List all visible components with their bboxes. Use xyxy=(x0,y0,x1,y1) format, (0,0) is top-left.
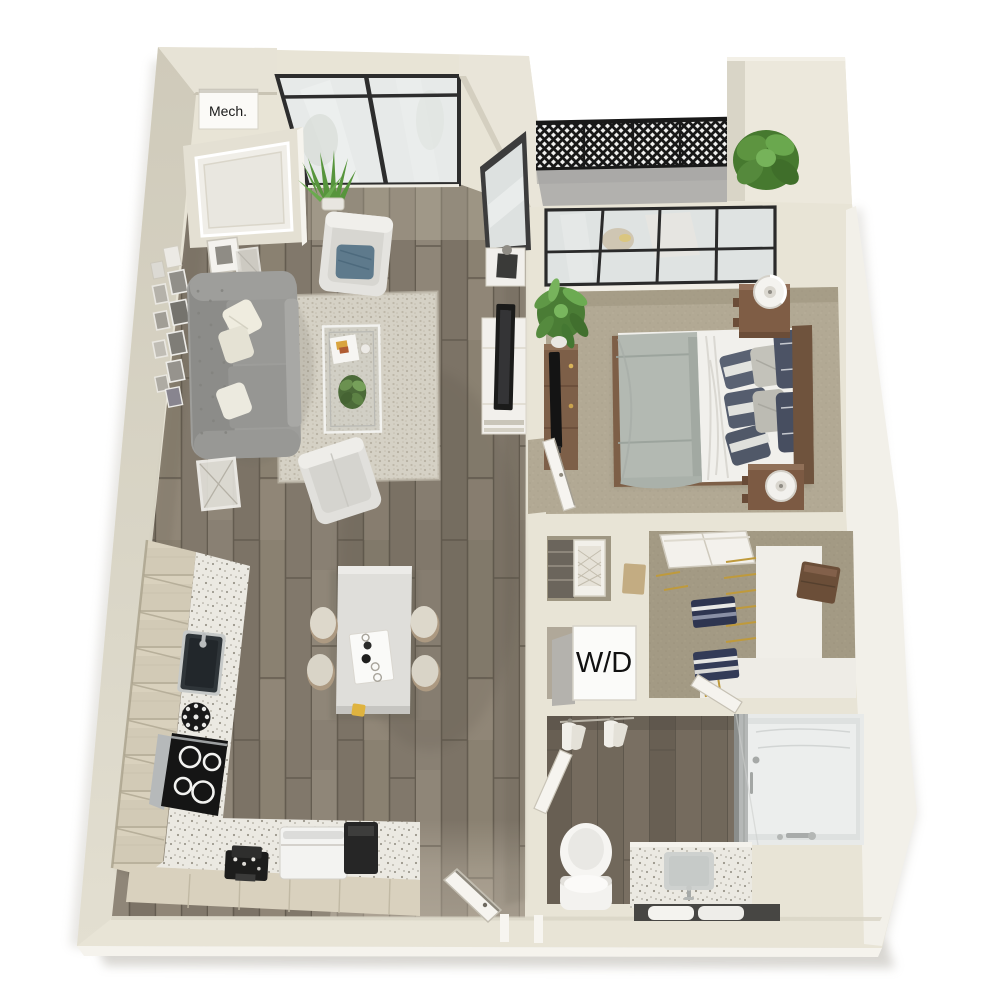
svg-text:W/D: W/D xyxy=(576,647,632,679)
svg-text:Mech.: Mech. xyxy=(209,103,247,119)
